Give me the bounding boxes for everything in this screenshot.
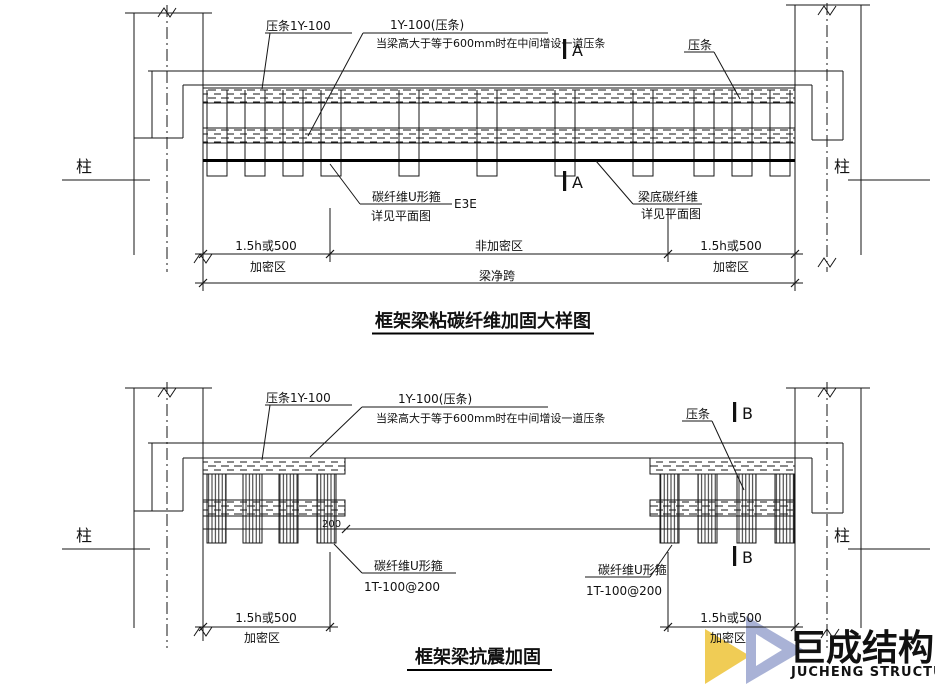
dim-zone-length-left: 1.5h或500: [235, 611, 297, 625]
section-letter: B: [742, 404, 753, 423]
section-mark-b-bottom: B: [733, 546, 753, 567]
column-left-text: 柱: [76, 157, 92, 176]
u-hoop-left-text: 碳纤维U形箍: [374, 558, 443, 573]
section-mark-b-top: B: [733, 402, 753, 423]
batten-mid-text: 1Y-100(压条): [398, 392, 472, 406]
label-batten-left: 压条1Y-100: [262, 391, 352, 460]
label-column-left: 柱: [62, 157, 150, 180]
left-column: [125, 5, 212, 291]
dimensions-bottom: 1.5h或500 加密区 1.5h或500 加密区: [195, 552, 803, 645]
section-mark-a-bottom: A: [563, 171, 583, 192]
watermark-brand-en: JUCHENG STRUCTURE: [790, 665, 935, 680]
label-column-right: 柱: [834, 157, 930, 180]
section-letter: B: [742, 548, 753, 567]
cad-drawing-canvas: 巨成结构 JUCHENG STRUCTURE: [0, 0, 935, 684]
batten-bands: [203, 88, 795, 161]
u-hoop-left-spec: 1T-100@200: [364, 580, 440, 594]
right-column: [786, 382, 870, 648]
dim-zone-left: 加密区: [250, 259, 286, 274]
beam-bottom-frp-note: 详见平面图: [641, 206, 701, 221]
diagram-top: A A 压条1Y-100 1Y-100(压条) 当梁高大于等于600mm时在中间…: [62, 3, 930, 334]
column-left-text: 柱: [76, 526, 92, 545]
batten-mid-note: 当梁高大于等于600mm时在中间增设一道压条: [376, 36, 605, 50]
u-hoop-right-spec: 1T-100@200: [586, 584, 662, 598]
batten-mid-note: 当梁高大于等于600mm时在中间增设一道压条: [376, 411, 605, 425]
dim-zone-left: 加密区: [244, 630, 280, 645]
beam-bottom-frp-text: 梁底碳纤维: [638, 189, 698, 204]
u-hoop-note: 详见平面图: [371, 208, 431, 223]
dim-zone-length-left: 1.5h或500: [235, 239, 297, 253]
dim-zone-right: 加密区: [710, 630, 746, 645]
label-u-hoop-right: 碳纤维U形箍 1T-100@200: [585, 545, 672, 598]
dim-zone-length-right: 1.5h或500: [700, 239, 762, 253]
dim-clear-span: 梁净跨: [479, 268, 515, 283]
title-bottom-text: 框架梁抗震加固: [415, 646, 541, 668]
column-right-text: 柱: [834, 157, 850, 176]
spacing-dim-text: 200: [322, 519, 341, 530]
label-column-right: 柱: [834, 526, 930, 549]
batten-mid-text: 1Y-100(压条): [390, 18, 464, 32]
batten-right-text: 压条: [686, 407, 710, 421]
column-right-text: 柱: [834, 526, 850, 545]
right-column: [786, 3, 870, 291]
title-bottom: 框架梁抗震加固: [407, 646, 552, 670]
dim-zone-right: 加密区: [713, 259, 749, 274]
batten-left-text: 压条1Y-100: [266, 19, 331, 33]
u-hoop-suffix: E3E: [454, 197, 477, 211]
label-batten-mid: 1Y-100(压条) 当梁高大于等于600mm时在中间增设一道压条: [310, 392, 605, 457]
dim-zone-length-right: 1.5h或500: [700, 611, 762, 625]
watermark-brand-cn: 巨成结构: [790, 628, 934, 669]
label-u-hoop-left: 碳纤维U形箍 1T-100@200: [334, 544, 456, 594]
dim-mid-zone: 非加密区: [475, 238, 523, 253]
cad-drawing-svg: 巨成结构 JUCHENG STRUCTURE: [0, 0, 935, 684]
batten-left-text: 压条1Y-100: [266, 391, 331, 405]
break-mark-icon: [818, 258, 836, 267]
label-batten-mid: 1Y-100(压条) 当梁高大于等于600mm时在中间增设一道压条: [308, 18, 605, 136]
section-letter: A: [572, 173, 583, 192]
dimensions-top: 1.5h或500 加密区 非加密区 1.5h或500 加密区 梁净跨: [195, 208, 803, 287]
title-top: 框架梁粘碳纤维加固大样图: [372, 310, 594, 334]
u-hoop-text: 碳纤维U形箍: [372, 189, 441, 204]
label-u-hoop: 碳纤维U形箍 E3E 详见平面图: [330, 164, 477, 223]
u-hoop-right-text: 碳纤维U形箍: [598, 562, 667, 577]
watermark: 巨成结构 JUCHENG STRUCTURE: [705, 616, 935, 684]
title-top-text: 框架梁粘碳纤维加固大样图: [375, 310, 591, 332]
label-beam-bottom-frp: 梁底碳纤维 详见平面图: [596, 161, 702, 221]
batten-right-text: 压条: [688, 38, 712, 52]
left-column: [125, 382, 212, 648]
label-column-left: 柱: [62, 526, 150, 549]
diagram-bottom: B B 压条1Y-100 1Y-100(压条) 当梁高大于等于600mm时在中间…: [62, 382, 930, 670]
